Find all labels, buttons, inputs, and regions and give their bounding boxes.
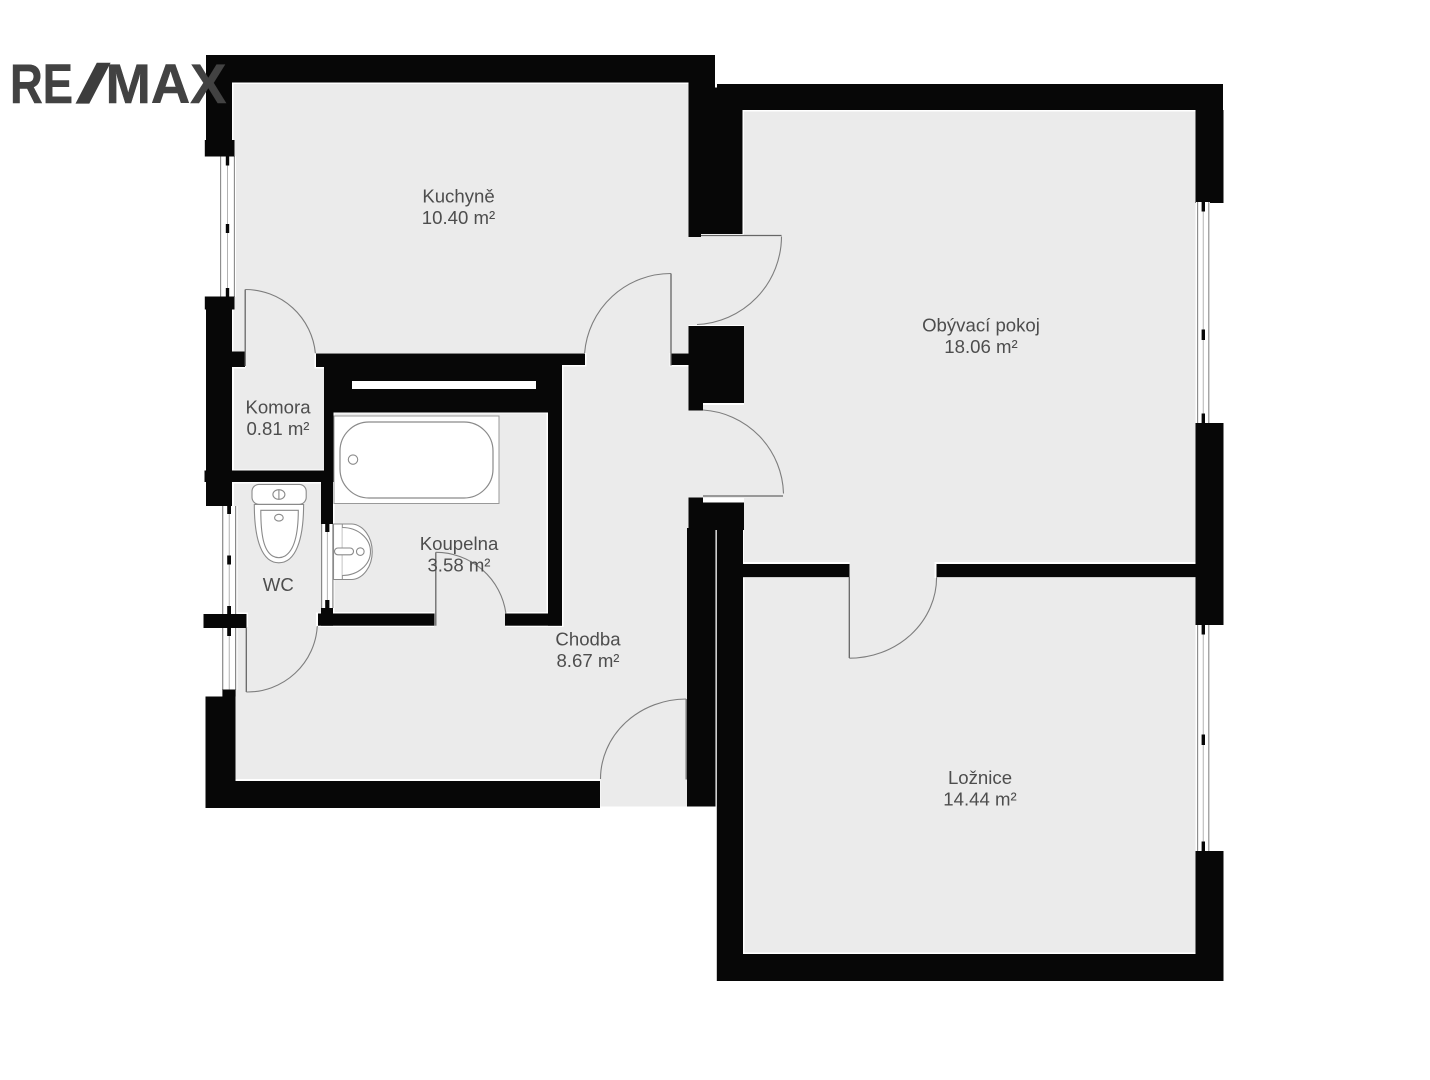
svg-text:MAX: MAX [106, 52, 227, 115]
svg-text:Chodba: Chodba [555, 629, 621, 650]
svg-text:14.44 m²: 14.44 m² [943, 789, 1016, 810]
svg-text:Kuchyně: Kuchyně [422, 185, 494, 206]
svg-text:Obývací pokoj: Obývací pokoj [922, 315, 1040, 336]
svg-text:10.40 m²: 10.40 m² [422, 207, 495, 228]
svg-text:Ložnice: Ložnice [948, 767, 1012, 788]
svg-text:8.67 m²: 8.67 m² [556, 650, 619, 671]
svg-text:RE: RE [10, 52, 73, 115]
svg-text:0.81 m²: 0.81 m² [246, 418, 309, 439]
svg-text:18.06 m²: 18.06 m² [944, 336, 1017, 357]
svg-text:Koupelna: Koupelna [420, 533, 499, 554]
svg-text:WC: WC [263, 574, 294, 595]
svg-text:Komora: Komora [245, 397, 311, 418]
svg-text:3.58 m²: 3.58 m² [427, 555, 490, 576]
